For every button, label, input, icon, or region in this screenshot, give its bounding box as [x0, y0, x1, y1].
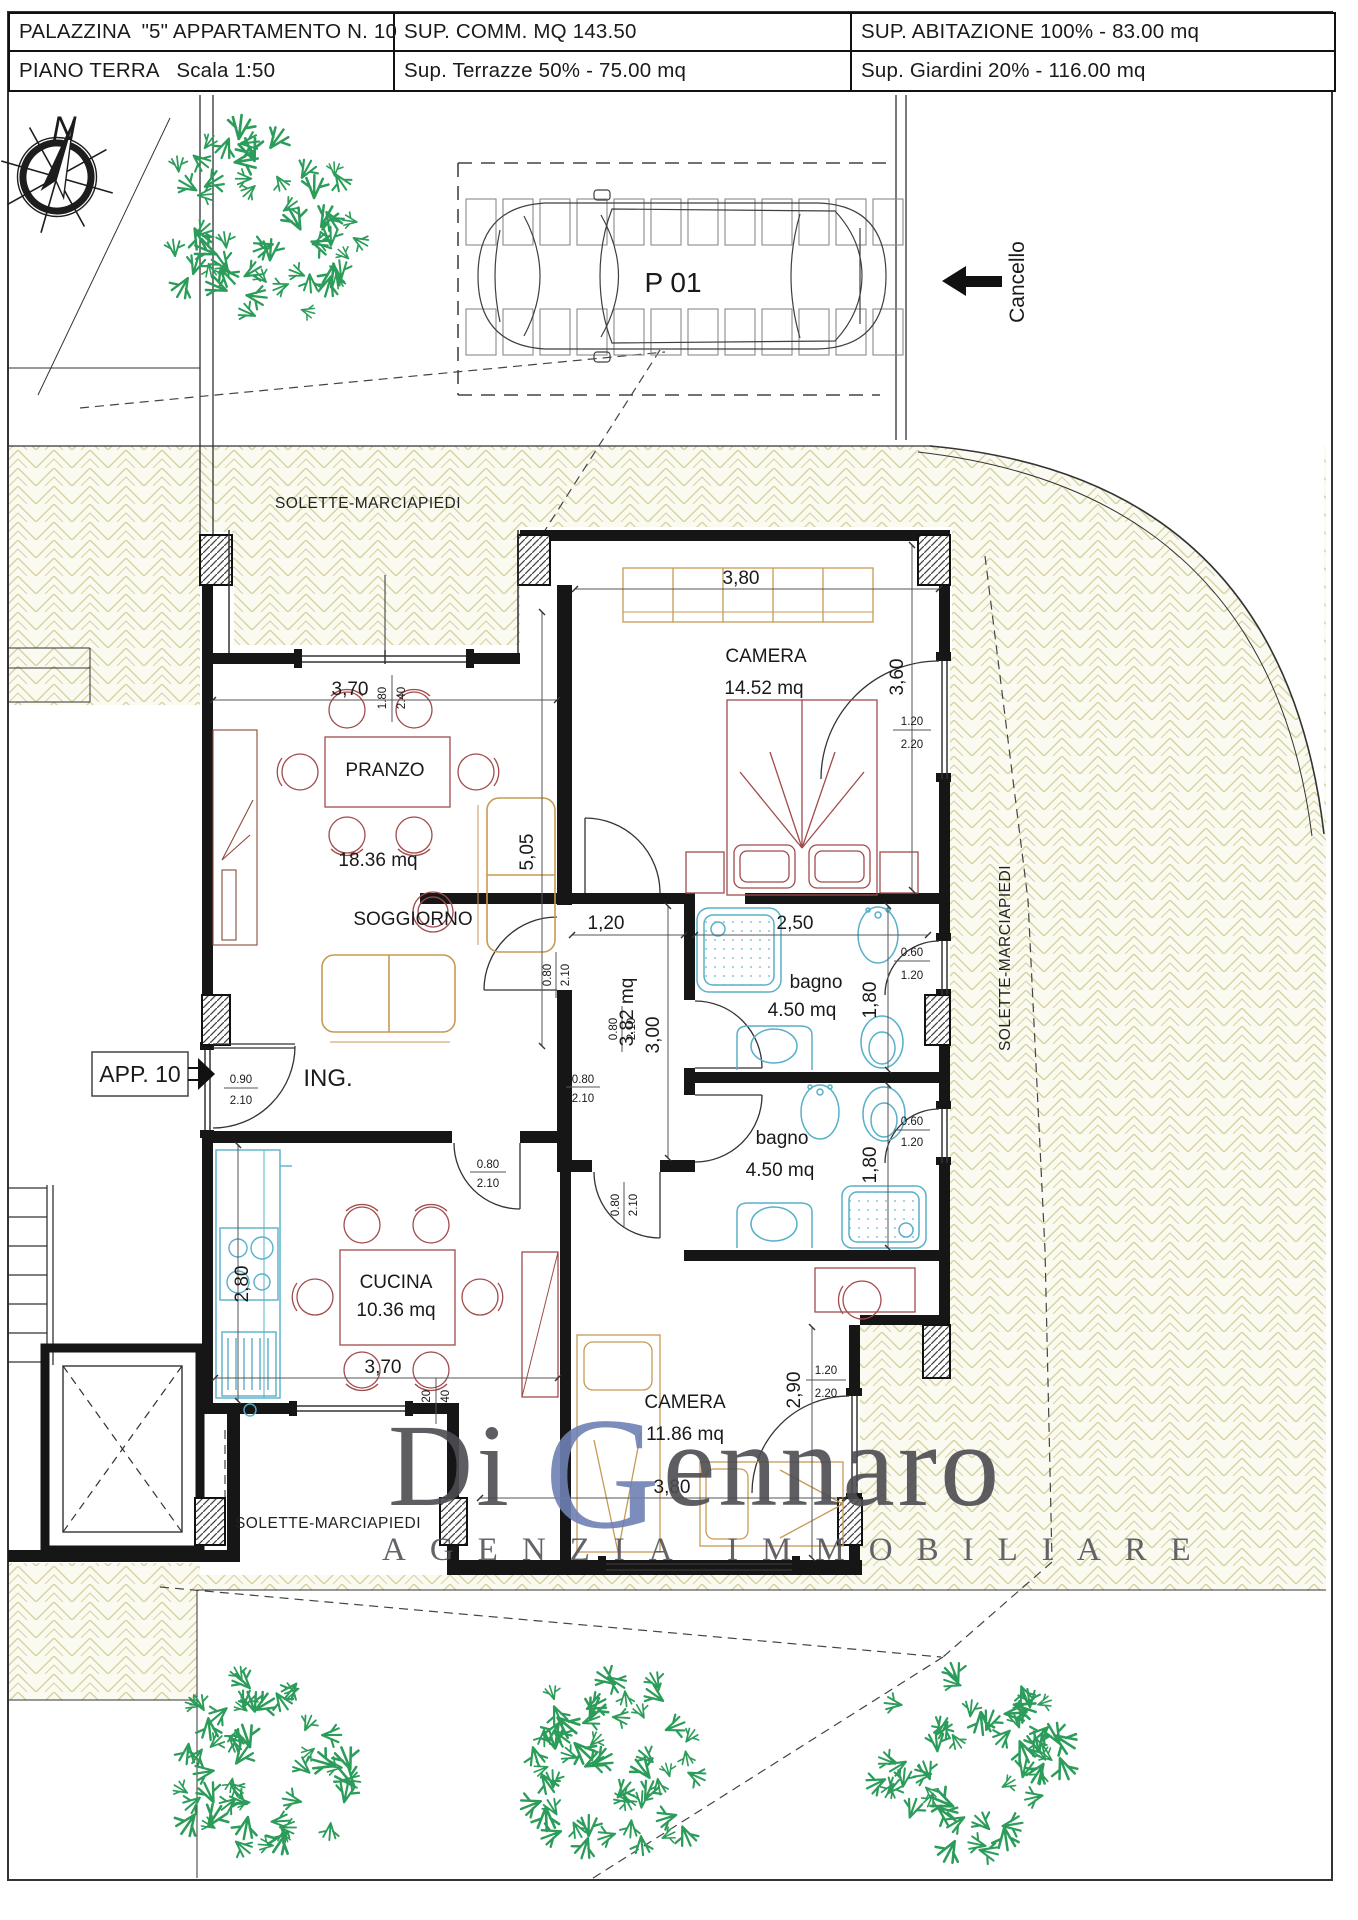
door4-w: 0.80: [610, 1194, 622, 1216]
dim-soggiorno-h: 5,05: [517, 834, 538, 871]
room-camera1: CAMERA: [725, 646, 807, 667]
dim-cucina-w: 3,70: [365, 1357, 402, 1378]
bagno2door-h: 1.20: [901, 1137, 923, 1149]
bagno2door-w: 0.60: [901, 1116, 923, 1128]
door3-w: 0.80: [572, 1074, 594, 1086]
title-building: PALAZZINA "5" APPARTAMENTO N. 10: [10, 14, 395, 52]
cucinawin-h: 2.40: [440, 1390, 452, 1412]
floor-plan-page: PALAZZINA "5" APPARTAMENTO N. 10 SUP. CO…: [0, 0, 1358, 1920]
cam2win-w: 1.20: [815, 1365, 837, 1377]
room-camera1-area: 14.52 mq: [724, 678, 803, 699]
title-sup-giardini: Sup. Giardini 20% - 116.00 mq: [852, 52, 1334, 90]
door3-h: 2.10: [572, 1093, 594, 1105]
dim-bagno1-w: 2,50: [777, 913, 814, 934]
bagno1door-h: 1.20: [901, 970, 923, 982]
dim-bagno2-h: 1,80: [860, 1147, 881, 1184]
badge-label: APP. 10: [99, 1061, 180, 1087]
dim-corridor-h: 3,00: [643, 1017, 664, 1054]
room-camera2-area: 11.86 mq: [646, 1424, 724, 1445]
dim-pranzo-w: 3,70: [332, 679, 369, 700]
door1-w: 0.80: [542, 964, 554, 986]
pranzowin-h: 2.40: [396, 687, 408, 709]
door5-w: 0.80: [477, 1159, 499, 1171]
plan-drawing: N: [0, 0, 1358, 1920]
north-label: N: [52, 110, 77, 148]
dim-corridor-w: 1,20: [588, 913, 625, 934]
dim-cucina-h: 2,80: [232, 1266, 253, 1303]
title-sup-comm: SUP. COMM. MQ 143.50: [395, 14, 852, 52]
room-bagno2: bagno: [756, 1128, 809, 1149]
gate-label: Cancello: [1006, 241, 1029, 323]
room-camera2: CAMERA: [644, 1392, 726, 1413]
dim-bagno1-h: 1,80: [860, 982, 881, 1019]
room-bagno2-area: 4.50 mq: [746, 1160, 815, 1181]
dim-camera1-w: 3,80: [723, 568, 760, 589]
door5-h: 2.10: [477, 1178, 499, 1190]
room-pranzo-area: 18.36 mq: [338, 850, 417, 871]
title-sup-abitazione: SUP. ABITAZIONE 100% - 83.00 mq: [852, 14, 1334, 52]
door4-h: 2.10: [628, 1194, 640, 1216]
room-cucina: CUCINA: [360, 1272, 433, 1293]
title-block: PALAZZINA "5" APPARTAMENTO N. 10 SUP. CO…: [8, 12, 1336, 92]
dim-camera2-w: 3,80: [654, 1477, 691, 1498]
entry-h: 2.10: [230, 1095, 252, 1107]
room-cucina-area: 10.36 mq: [356, 1300, 435, 1321]
cam2win-h: 2.20: [815, 1388, 837, 1400]
cam1win-h: 2.20: [901, 739, 923, 751]
dim-camera2-h: 2,90: [784, 1372, 805, 1409]
parking-label: P 01: [644, 267, 701, 298]
door1-h: 2.10: [560, 964, 572, 986]
entry-w: 0.90: [230, 1074, 252, 1086]
sidewalk-label-right: SOLETTE-MARCIAPIEDI: [997, 865, 1014, 1051]
door2-h: 2.10: [626, 1018, 638, 1040]
title-floor-scale: PIANO TERRA Scala 1:50: [10, 52, 395, 90]
entrance-label: ING.: [303, 1065, 352, 1092]
room-bagno1: bagno: [790, 972, 843, 993]
title-sup-terrazze: Sup. Terrazze 50% - 75.00 mq: [395, 52, 852, 90]
bagno1door-w: 0.60: [901, 947, 923, 959]
dim-camera1-h: 3,60: [887, 659, 908, 696]
door2-w: 0.80: [608, 1018, 620, 1040]
room-soggiorno: SOGGIORNO: [353, 909, 472, 930]
compass-icon: N: [0, 103, 129, 248]
room-bagno1-area: 4.50 mq: [768, 1000, 837, 1021]
pranzowin-w: 1.80: [377, 687, 389, 709]
sidewalk-label-top: SOLETTE-MARCIAPIEDI: [275, 495, 461, 512]
cucinawin-w: 1.20: [421, 1390, 433, 1412]
gate-arrow-icon: [942, 266, 1002, 296]
room-pranzo: PRANZO: [345, 760, 424, 781]
cam1win-w: 1.20: [901, 716, 923, 728]
sidewalk-label-bottom: SOLETTE-MARCIAPIEDI: [235, 1515, 421, 1532]
